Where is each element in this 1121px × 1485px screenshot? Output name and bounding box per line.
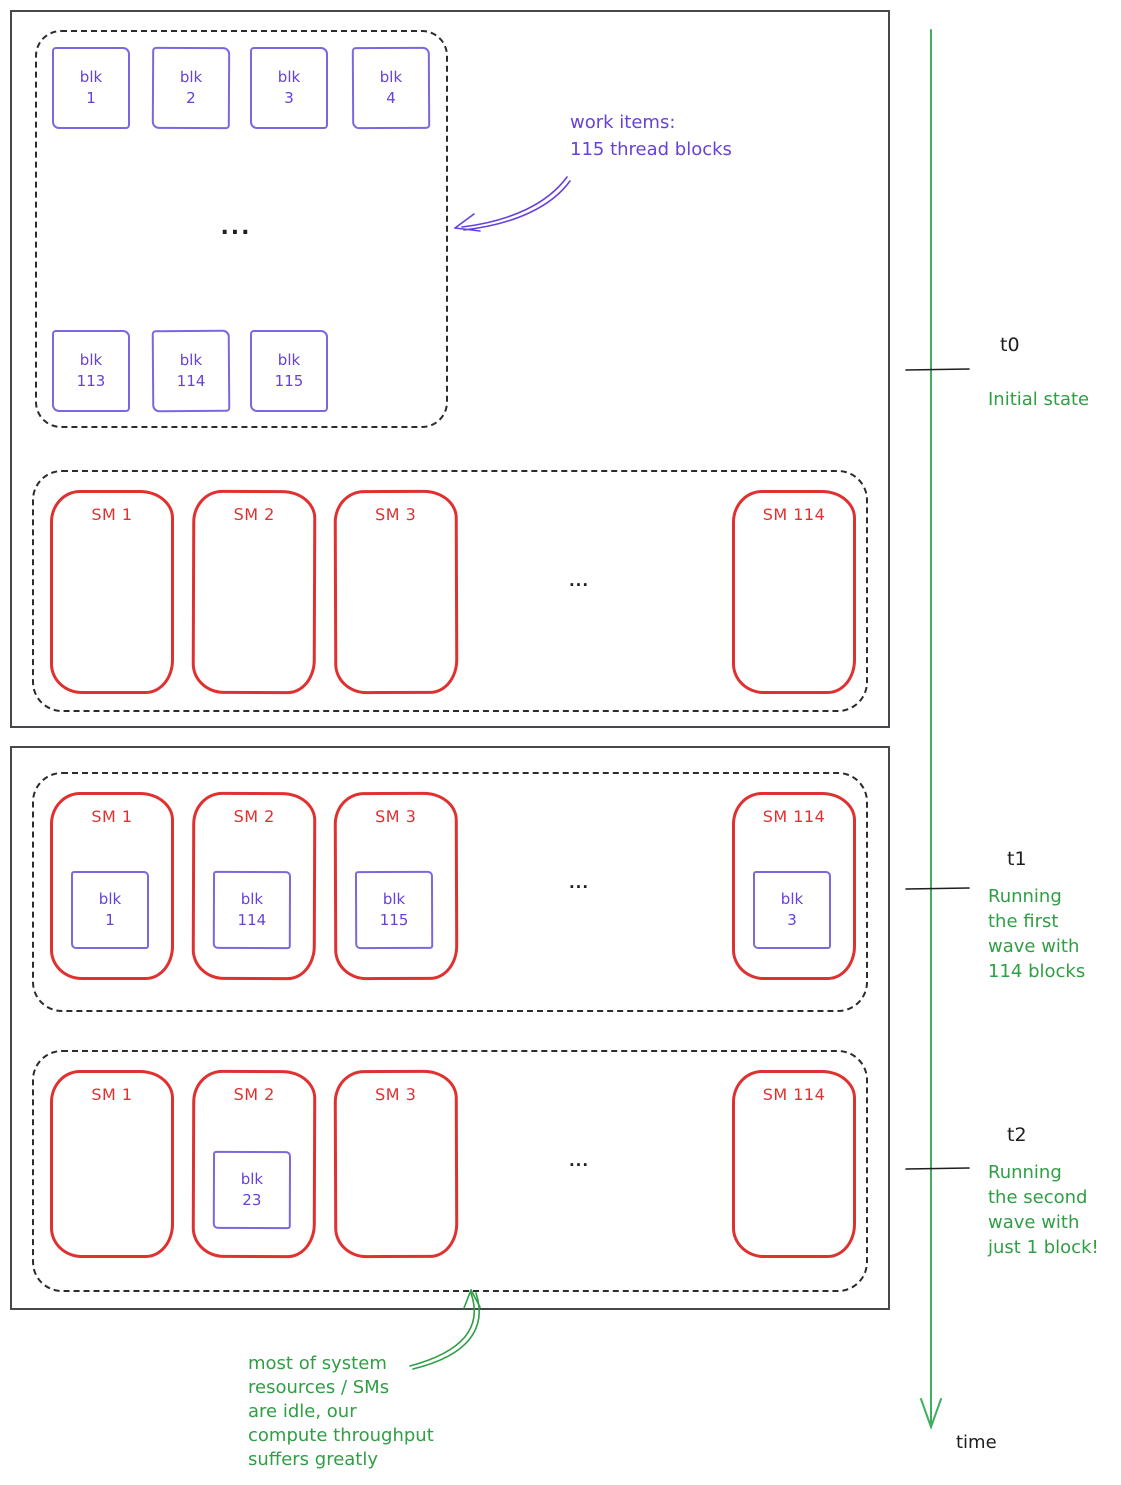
- sm-label: SM 1: [53, 795, 171, 826]
- work-item-blk-115: blk115: [250, 330, 328, 412]
- sm-label: SM 3: [337, 1073, 455, 1104]
- caption-line: Running: [988, 884, 1085, 909]
- blk-label: blk: [275, 350, 304, 371]
- scheduled-blk-115: blk115: [355, 871, 433, 949]
- sm-row-ellipsis: ...: [549, 874, 609, 892]
- scheduled-blk-3: blk3: [753, 871, 831, 949]
- sm-row-ellipsis: ...: [549, 572, 609, 590]
- blk-label: blk: [380, 67, 403, 88]
- sm-114: SM 114: [732, 1070, 856, 1258]
- work-item-blk-4: blk4: [352, 47, 430, 129]
- idle-sms-annotation: most of system resources / SMs are idle,…: [248, 1352, 434, 1472]
- timeline-t1-caption: Running the first wave with 114 blocks: [988, 884, 1085, 984]
- annotation-line: most of system: [248, 1352, 434, 1376]
- sm-row-initial: SM 1 SM 2 SM 3 ... SM 114: [32, 470, 868, 712]
- caption-line: 114 blocks: [988, 959, 1085, 984]
- sm-114: SM 114 blk3: [732, 792, 856, 980]
- caption-line: the first: [988, 909, 1085, 934]
- sm-3: SM 3: [334, 1070, 459, 1258]
- work-item-blk-113: blk113: [52, 330, 130, 412]
- blk-number: 3: [278, 88, 300, 109]
- work-item-blk-1: blk1: [52, 47, 130, 129]
- sm-label: SM 2: [195, 1073, 313, 1104]
- sm-1: SM 1 blk1: [50, 792, 174, 980]
- sm-label: SM 1: [53, 1073, 171, 1104]
- sm-2: SM 2 blk114: [192, 792, 317, 980]
- sm-114: SM 114: [732, 490, 856, 694]
- timeline-axis-label: time: [956, 1432, 997, 1453]
- sm-1: SM 1: [50, 490, 174, 694]
- scheduled-blk-1: blk1: [71, 871, 149, 949]
- blk-number: 114: [177, 371, 206, 392]
- blk-number: 1: [80, 88, 102, 109]
- work-item-blk-2: blk2: [152, 47, 230, 129]
- annotation-line: work items:: [570, 109, 732, 136]
- sm-label: SM 2: [195, 493, 313, 524]
- sm-label: SM 2: [195, 795, 313, 826]
- scheduled-blk-23: blk23: [213, 1151, 291, 1229]
- caption-line: just 1 block!: [988, 1235, 1099, 1260]
- blk-label: blk: [781, 889, 803, 910]
- sm-row-second-wave: SM 1 SM 2 blk23 SM 3 ... SM 114: [32, 1050, 868, 1292]
- blk-number: 2: [180, 88, 203, 109]
- timeline-t0-caption: Initial state: [988, 387, 1089, 412]
- sm-row-ellipsis: ...: [549, 1152, 609, 1170]
- sm-label: SM 114: [735, 795, 853, 826]
- work-item-blk-114: blk114: [152, 330, 231, 413]
- blk-number: 113: [77, 371, 106, 392]
- sm-label: SM 114: [735, 1073, 853, 1104]
- blk-number: 115: [275, 371, 304, 392]
- blk-number: 23: [241, 1190, 263, 1211]
- caption-line: wave with: [988, 934, 1085, 959]
- work-item-blk-3: blk3: [250, 47, 328, 129]
- blk-label: blk: [278, 67, 300, 88]
- annotation-line: resources / SMs: [248, 1376, 434, 1400]
- caption-line: Running: [988, 1160, 1099, 1185]
- blk-label: blk: [238, 889, 267, 910]
- blk-number: 1: [99, 910, 121, 931]
- sm-1: SM 1: [50, 1070, 174, 1258]
- blk-label: blk: [177, 350, 206, 371]
- blk-label: blk: [241, 1169, 263, 1190]
- blk-label: blk: [99, 889, 121, 910]
- timeline-axis-arrow: [921, 30, 941, 1427]
- annotation-line: 115 thread blocks: [570, 136, 732, 163]
- scheduled-blk-114: blk114: [213, 871, 291, 949]
- timeline-t1-label: t1: [1007, 848, 1027, 870]
- panel-running-waves: SM 1 blk1 SM 2 blk114 SM 3 blk115 ... SM…: [10, 746, 890, 1310]
- annotation-line: are idle, our: [248, 1400, 434, 1424]
- sm-label: SM 3: [337, 795, 455, 826]
- timeline-t0-label: t0: [1000, 334, 1020, 356]
- sm-label: SM 3: [337, 493, 455, 524]
- caption-line: the second: [988, 1185, 1099, 1210]
- sm-2: SM 2: [192, 490, 317, 694]
- panel-initial-state: blk1 blk2 blk3 blk4 ... blk113 blk114 bl…: [10, 10, 890, 728]
- blk-label: blk: [380, 889, 409, 910]
- blk-label: blk: [180, 67, 203, 88]
- timeline-ticks: [906, 369, 969, 1169]
- timeline-t2-label: t2: [1007, 1124, 1027, 1146]
- blk-number: 114: [238, 910, 267, 931]
- timeline-t2-caption: Running the second wave with just 1 bloc…: [988, 1160, 1099, 1260]
- blk-number: 3: [781, 910, 803, 931]
- sm-label: SM 1: [53, 493, 171, 524]
- caption-line: wave with: [988, 1210, 1099, 1235]
- sm-row-first-wave: SM 1 blk1 SM 2 blk114 SM 3 blk115 ... SM…: [32, 772, 868, 1012]
- annotation-line: suffers greatly: [248, 1448, 434, 1472]
- annotation-line: compute throughput: [248, 1424, 434, 1448]
- blk-number: 115: [380, 910, 409, 931]
- diagram-canvas: blk1 blk2 blk3 blk4 ... blk113 blk114 bl…: [0, 0, 1121, 1485]
- blk-label: blk: [80, 67, 102, 88]
- work-items-ellipsis: ...: [212, 215, 260, 240]
- blk-number: 4: [380, 88, 403, 109]
- sm-3: SM 3: [334, 490, 459, 694]
- blk-label: blk: [77, 350, 106, 371]
- work-items-container: blk1 blk2 blk3 blk4 ... blk113 blk114 bl…: [35, 30, 448, 428]
- sm-2: SM 2 blk23: [192, 1070, 317, 1258]
- sm-3: SM 3 blk115: [334, 792, 459, 980]
- sm-label: SM 114: [735, 493, 853, 524]
- work-items-annotation: work items: 115 thread blocks: [570, 109, 732, 163]
